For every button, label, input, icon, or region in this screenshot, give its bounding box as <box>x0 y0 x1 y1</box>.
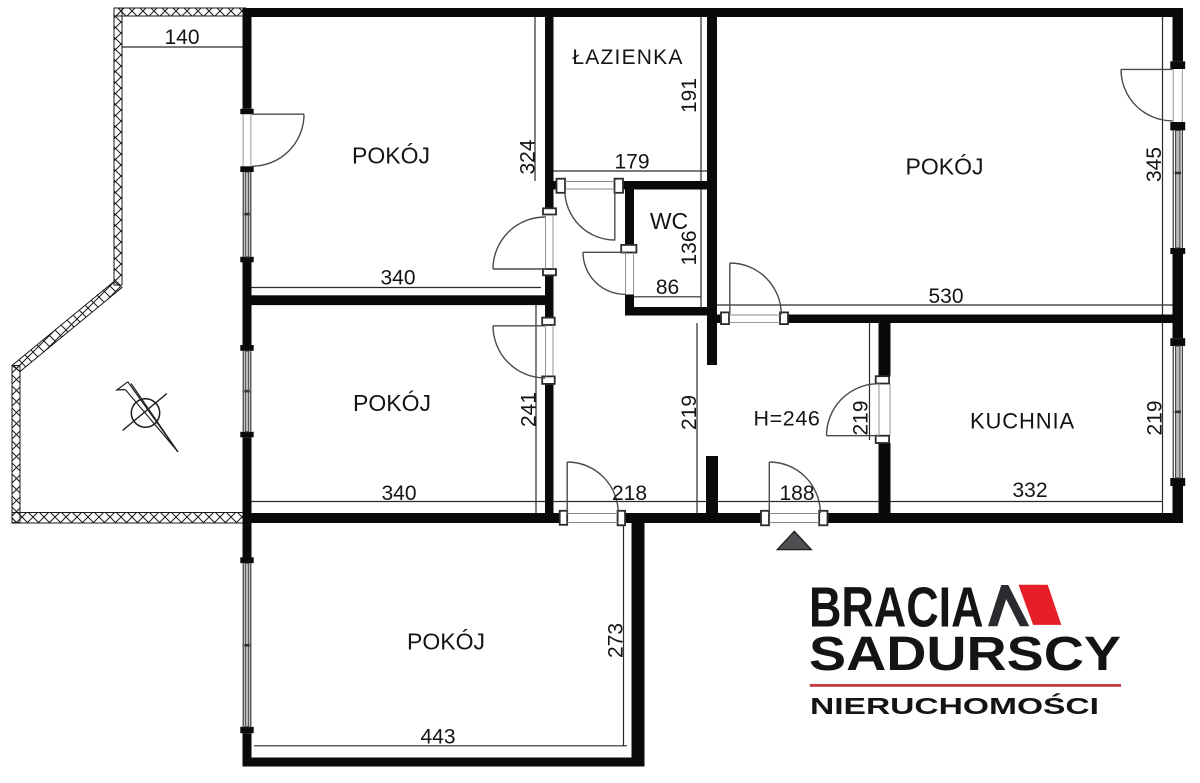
svg-text:140: 140 <box>164 26 199 49</box>
svg-text:191: 191 <box>678 78 701 113</box>
svg-text:219: 219 <box>1144 400 1167 435</box>
svg-text:345: 345 <box>1143 147 1166 182</box>
svg-text:340: 340 <box>381 482 416 505</box>
svg-text:H=246: H=246 <box>754 407 821 431</box>
svg-text:86: 86 <box>656 276 679 299</box>
svg-text:443: 443 <box>420 726 455 749</box>
svg-text:218: 218 <box>612 482 647 505</box>
svg-text:332: 332 <box>1012 479 1047 502</box>
svg-text:POKÓJ: POKÓJ <box>906 154 984 180</box>
svg-text:ŁAZIENKA: ŁAZIENKA <box>572 46 683 69</box>
svg-text:WC: WC <box>650 208 688 234</box>
svg-text:POKÓJ: POKÓJ <box>407 629 485 655</box>
svg-text:324: 324 <box>517 139 540 174</box>
svg-text:241: 241 <box>518 392 541 427</box>
svg-text:530: 530 <box>928 285 963 308</box>
svg-text:340: 340 <box>380 267 415 290</box>
svg-text:POKÓJ: POKÓJ <box>352 143 430 169</box>
svg-text:POKÓJ: POKÓJ <box>353 390 431 416</box>
svg-text:NIERUCHOMOŚCI: NIERUCHOMOŚCI <box>810 692 1099 719</box>
svg-text:179: 179 <box>614 151 649 174</box>
svg-text:273: 273 <box>605 623 628 658</box>
svg-text:188: 188 <box>779 482 814 505</box>
svg-text:219: 219 <box>678 395 701 430</box>
svg-text:SADURSCY: SADURSCY <box>809 627 1121 681</box>
svg-text:KUCHNIA: KUCHNIA <box>970 409 1075 434</box>
svg-text:136: 136 <box>678 230 701 265</box>
svg-text:219: 219 <box>850 400 873 435</box>
